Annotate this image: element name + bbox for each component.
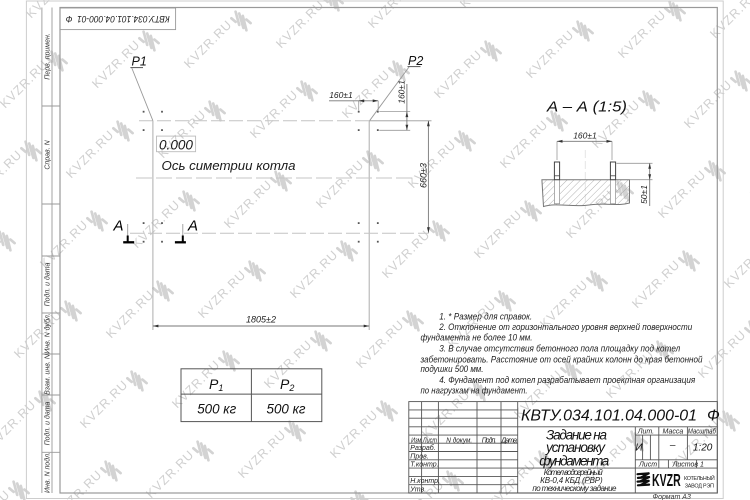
svg-text:KVZR.RU: KVZR.RU bbox=[681, 77, 735, 131]
svg-text:Разраб.: Разраб. bbox=[410, 444, 435, 452]
svg-text:KVZR.RU: KVZR.RU bbox=[0, 57, 51, 111]
svg-text:Инв. N подл.: Инв. N подл. bbox=[44, 452, 52, 493]
svg-text:500 кг: 500 кг bbox=[267, 402, 306, 417]
svg-text:Лит.: Лит. bbox=[637, 428, 654, 435]
svg-text:KVZR.RU: KVZR.RU bbox=[247, 87, 301, 141]
svg-text:2. Отклонение от горизонтально: 2. Отклонение от горизонтального уровня … bbox=[438, 322, 692, 333]
svg-text:KVZR.RU: KVZR.RU bbox=[707, 0, 750, 41]
svg-text:KVZR.RU: KVZR.RU bbox=[379, 227, 433, 281]
svg-text:Т.контр.: Т.контр. bbox=[410, 462, 438, 469]
svg-text:KVZR.RU: KVZR.RU bbox=[313, 157, 367, 211]
svg-text:KVZR.RU: KVZR.RU bbox=[63, 127, 117, 181]
svg-text:KVZR.RU: KVZR.RU bbox=[221, 177, 275, 231]
svg-text:KVZR.RU: KVZR.RU bbox=[629, 257, 683, 311]
svg-text:Масса: Масса bbox=[663, 428, 684, 435]
svg-text:KVZR.RU: KVZR.RU bbox=[721, 237, 750, 291]
svg-text:KVZR.RU: KVZR.RU bbox=[695, 327, 749, 381]
svg-text:50±1: 50±1 bbox=[639, 185, 649, 204]
svg-text:по нагрузкам на фундамент.: по нагрузкам на фундамент. bbox=[421, 385, 528, 396]
svg-text:Утв.: Утв. bbox=[409, 486, 426, 493]
svg-text:KVZR.RU: KVZR.RU bbox=[143, 447, 197, 500]
svg-text:ЗАВОД РЭП: ЗАВОД РЭП bbox=[685, 484, 714, 490]
svg-text:KVZR.RU: KVZR.RU bbox=[181, 17, 235, 71]
svg-text:Пров.: Пров. bbox=[410, 453, 429, 460]
svg-text:Перв. примен.: Перв. примен. bbox=[45, 33, 52, 80]
svg-text:KVZR.RU: KVZR.RU bbox=[471, 207, 525, 261]
svg-text:Справ. N: Справ. N bbox=[45, 139, 52, 169]
svg-text:KVZR.RU: KVZR.RU bbox=[655, 167, 709, 221]
svg-text:3. В случае отсутствия бетонно: 3. В случае отсутствия бетонного пола пл… bbox=[439, 344, 681, 355]
svg-text:KVZR.RU: KVZR.RU bbox=[431, 47, 485, 101]
svg-text:KVZR.RU: KVZR.RU bbox=[365, 0, 419, 31]
svg-text:KVZR.RU: KVZR.RU bbox=[195, 267, 249, 321]
svg-text:Подп. и дата: Подп. и дата bbox=[44, 262, 52, 306]
svg-text:500 кг: 500 кг bbox=[197, 402, 236, 417]
svg-text:KVZR.RU: KVZR.RU bbox=[735, 487, 750, 500]
svg-text:KVZR.RU: KVZR.RU bbox=[77, 377, 131, 431]
svg-text:Ф: Ф bbox=[707, 408, 720, 425]
svg-text:0.000: 0.000 bbox=[159, 137, 193, 152]
svg-text:А – А (1:5): А – А (1:5) bbox=[546, 100, 627, 116]
svg-text:KVZR.RU: KVZR.RU bbox=[615, 7, 669, 61]
svg-text:Подп. и дата: Подп. и дата bbox=[44, 401, 52, 445]
svg-text:Лист: Лист bbox=[638, 462, 657, 469]
svg-text:KVZR.RU: KVZR.RU bbox=[11, 307, 65, 361]
svg-text:Подп.: Подп. bbox=[482, 436, 496, 444]
svg-text:подушки 500 мм.: подушки 500 мм. bbox=[421, 364, 484, 375]
svg-text:KVZR.RU: KVZR.RU bbox=[497, 117, 551, 171]
svg-text:А: А bbox=[113, 218, 124, 235]
svg-text:КВТУ.034.101.04.000-01: КВТУ.034.101.04.000-01 bbox=[521, 408, 697, 425]
svg-text:KVZR.RU: KVZR.RU bbox=[51, 467, 105, 500]
svg-text:по техническому задание: по техническому задание bbox=[532, 484, 617, 493]
svg-text:Дата: Дата bbox=[500, 437, 517, 444]
svg-text:KVZR.RU: KVZR.RU bbox=[155, 107, 209, 161]
svg-text:KVZR.RU: KVZR.RU bbox=[523, 27, 577, 81]
svg-text:Изм.Лист: Изм.Лист bbox=[411, 437, 437, 444]
svg-text:KVZR.RU: KVZR.RU bbox=[327, 407, 381, 461]
svg-text:Масштаб: Масштаб bbox=[688, 427, 717, 435]
svg-text:160±1: 160±1 bbox=[329, 90, 353, 100]
svg-text:KVZR.RU: KVZR.RU bbox=[353, 317, 407, 371]
svg-text:Инв. N дубл.: Инв. N дубл. bbox=[44, 313, 52, 354]
svg-text:KVZR.RU: KVZR.RU bbox=[457, 0, 511, 11]
svg-text:1805±2: 1805±2 bbox=[246, 315, 276, 325]
svg-text:660±3: 660±3 bbox=[419, 163, 429, 188]
svg-text:–: – bbox=[669, 440, 676, 451]
svg-text:P2: P2 bbox=[408, 54, 423, 68]
svg-text:KVZR.RU: KVZR.RU bbox=[0, 147, 25, 201]
svg-text:1:20: 1:20 bbox=[693, 443, 713, 454]
svg-text:KVZR.RU: KVZR.RU bbox=[485, 457, 539, 500]
svg-text:P1: P1 bbox=[132, 55, 147, 69]
svg-text:KVZR.RU: KVZR.RU bbox=[103, 287, 157, 341]
svg-text:Ось симетрии котла: Ось симетрии котла bbox=[162, 158, 296, 173]
svg-text:P2: P2 bbox=[280, 376, 294, 393]
svg-text:Н.контр.: Н.контр. bbox=[410, 478, 440, 485]
svg-text:KVZR.RU: KVZR.RU bbox=[235, 427, 289, 481]
svg-text:160±1: 160±1 bbox=[573, 131, 597, 141]
svg-text:KVZR.RU: KVZR.RU bbox=[0, 397, 39, 451]
svg-text:KVZR: KVZR bbox=[652, 470, 681, 490]
svg-text:фундамента не более 10 мм.: фундамента не более 10 мм. bbox=[421, 333, 533, 344]
svg-text:KVZR.RU: KVZR.RU bbox=[405, 137, 459, 191]
svg-text:фундамента: фундамента bbox=[539, 453, 609, 468]
svg-text:КВТУ.034.101.04.000-01 Ф: КВТУ.034.101.04.000-01 Ф bbox=[65, 13, 169, 24]
svg-text:1: 1 bbox=[700, 462, 704, 469]
svg-text:Листов: Листов bbox=[672, 462, 699, 469]
svg-text:Формат А3: Формат А3 bbox=[653, 494, 691, 500]
svg-text:Взам. инв. N: Взам. инв. N bbox=[45, 353, 52, 395]
svg-text:160±1: 160±1 bbox=[397, 80, 407, 104]
svg-text:КОТЕЛЬНЫЙ: КОТЕЛЬНЫЙ bbox=[684, 474, 715, 482]
svg-text:И: И bbox=[635, 443, 643, 454]
svg-text:KVZR.RU: KVZR.RU bbox=[287, 247, 341, 301]
svg-text:N докум.: N докум. bbox=[446, 436, 472, 444]
svg-text:А: А bbox=[187, 218, 198, 235]
svg-text:P1: P1 bbox=[209, 376, 223, 393]
